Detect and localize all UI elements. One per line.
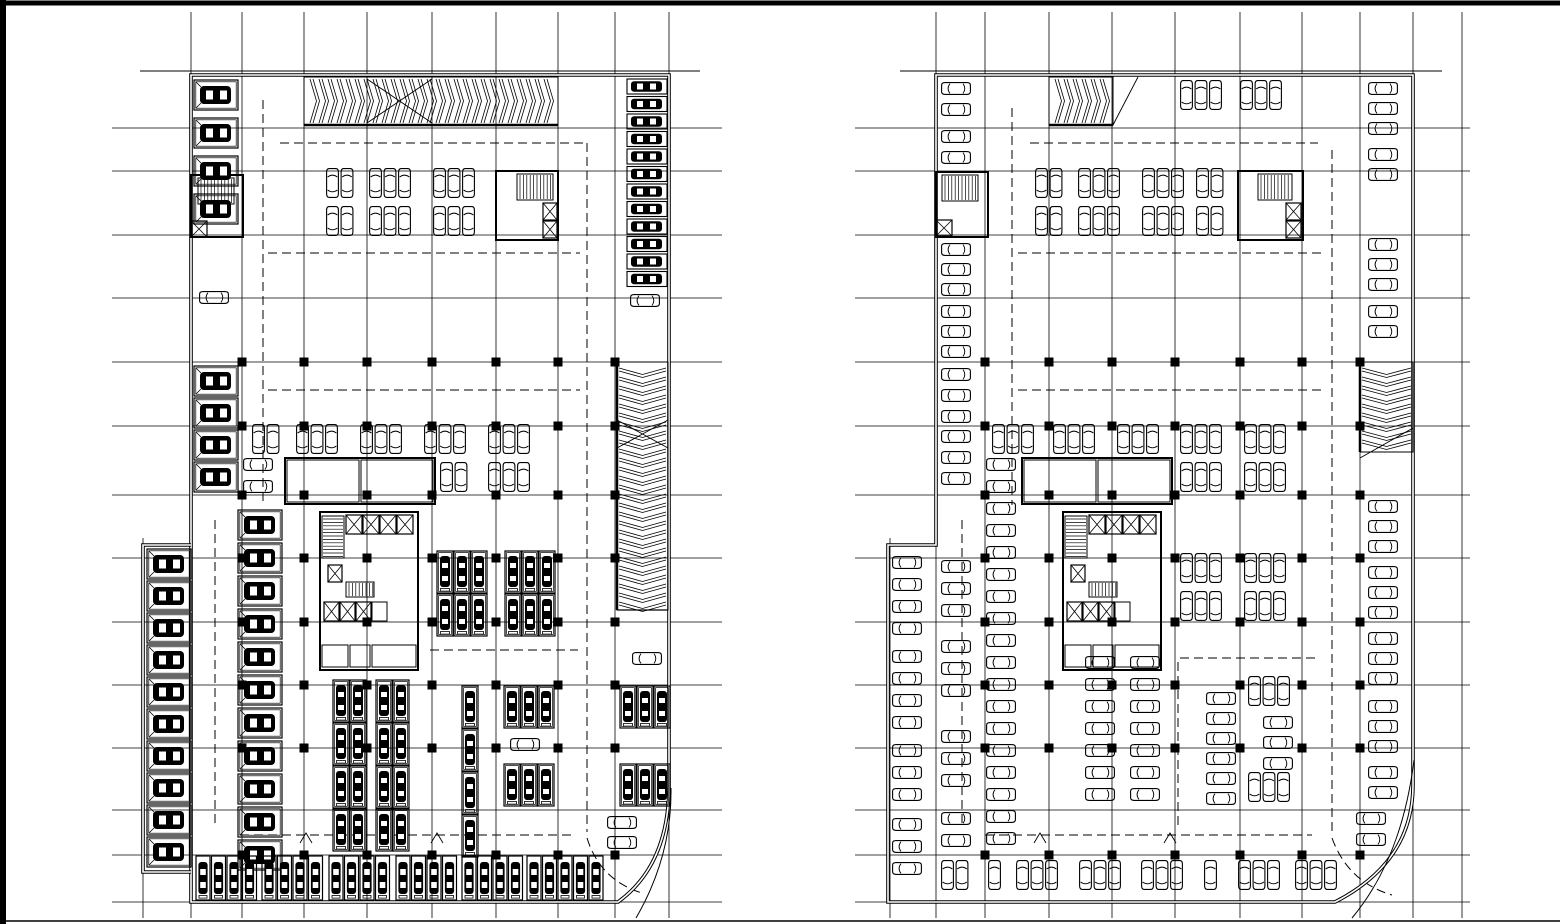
car-windshield: [1275, 469, 1285, 471]
car-windshield: [1375, 84, 1377, 94]
pallet: [458, 632, 467, 635]
car-body: [1245, 463, 1257, 492]
slot: [173, 560, 180, 569]
car-rear-window: [1107, 768, 1109, 778]
stair-icon: [517, 174, 553, 200]
car-rear-window: [371, 190, 381, 192]
car-body: [893, 863, 922, 875]
car-icon: [370, 169, 382, 198]
car-windshield: [899, 558, 901, 568]
pallet: [543, 589, 552, 592]
car-rear-window: [268, 446, 278, 448]
pallet: [561, 896, 569, 899]
car-windshield: [1144, 175, 1154, 177]
car-icon: [1369, 521, 1398, 533]
car-icon: [1369, 587, 1398, 599]
car-windshield: [328, 213, 338, 215]
mech-stall-icon: [329, 856, 343, 900]
slot: [313, 869, 319, 875]
car-body: [1278, 677, 1290, 706]
pallet: [530, 896, 538, 899]
car-icon: [1274, 463, 1286, 492]
car-rear-window: [914, 864, 916, 874]
slot: [338, 821, 344, 826]
car-icon: [1207, 793, 1236, 805]
pallet: [354, 761, 363, 764]
mech-stall-icon: [147, 709, 191, 739]
car-icon: [384, 169, 396, 198]
ramp-chevron: [619, 368, 666, 375]
slot: [159, 816, 166, 825]
car-body: [893, 601, 922, 613]
ramp-chevron: [619, 377, 666, 384]
car-windshield: [948, 153, 950, 163]
car-body: [1249, 773, 1261, 802]
slot: [250, 719, 257, 728]
slot: [173, 656, 180, 665]
car-windshield: [948, 132, 950, 142]
car-rear-window: [1110, 882, 1120, 884]
car-windshield: [1375, 674, 1377, 684]
slot: [459, 606, 465, 611]
mech-car-silhouette: [508, 556, 518, 587]
car-body: [1195, 81, 1207, 110]
car-body: [370, 169, 382, 198]
car-rear-window: [1196, 575, 1206, 577]
pallet: [624, 724, 633, 727]
car-windshield: [400, 213, 410, 215]
column-icon: [492, 422, 501, 431]
car-body: [893, 673, 922, 685]
car-body: [1369, 279, 1398, 291]
parking-row: [505, 551, 555, 593]
slot: [264, 785, 271, 794]
car-rear-window: [1157, 882, 1167, 884]
car-body: [1108, 169, 1120, 198]
car-rear-window: [1119, 446, 1129, 448]
car-rear-window: [1008, 702, 1010, 712]
car-body: [434, 169, 446, 198]
car-rear-window: [1285, 738, 1287, 748]
car-icon: [987, 745, 1016, 757]
car-windshield: [993, 570, 995, 580]
elevator-icon: [397, 515, 413, 534]
car-rear-window: [1182, 613, 1192, 615]
column-icon: [238, 851, 247, 860]
car-windshield: [1137, 790, 1139, 800]
mech-car-silhouette: [379, 771, 389, 802]
car-rear-window: [400, 190, 410, 192]
column-icon: [1108, 851, 1117, 860]
ramp-chevron: [1362, 386, 1411, 393]
pallet: [481, 896, 489, 899]
car-body: [942, 753, 971, 765]
slot: [637, 259, 643, 265]
parking-row: [1143, 169, 1184, 198]
mech-stall-icon: [147, 581, 191, 611]
car-rear-window: [963, 432, 965, 442]
slot: [497, 869, 503, 875]
car-body: [1369, 103, 1398, 115]
car-body: [1086, 789, 1115, 801]
mech-car-silhouette: [280, 862, 289, 894]
car-windshield: [1182, 431, 1192, 433]
car-icon: [1259, 463, 1271, 492]
tick: [149, 828, 154, 833]
pallet: [577, 896, 585, 899]
slot: [264, 719, 271, 728]
car-windshield: [1246, 431, 1256, 433]
car-windshield: [943, 867, 953, 869]
car-icon: [1131, 789, 1160, 801]
pallet: [337, 804, 346, 807]
car-windshield: [1211, 431, 1221, 433]
mech-car-silhouette: [295, 862, 304, 894]
car-rear-window: [629, 838, 631, 848]
car-rear-window: [1211, 613, 1221, 615]
column-icon: [363, 744, 372, 753]
slot: [231, 869, 237, 875]
car-icon: [942, 369, 971, 381]
car-rear-window: [1285, 759, 1287, 769]
car-body: [1357, 813, 1386, 825]
parking-row: [608, 837, 637, 849]
car-rear-window: [1260, 484, 1270, 486]
parking-row: [987, 459, 1016, 845]
parking-row: [370, 207, 411, 236]
car-body: [399, 207, 411, 236]
tick: [149, 583, 154, 588]
parking-row: [1245, 425, 1286, 454]
column-icon: [300, 422, 309, 431]
car-windshield: [1182, 469, 1192, 471]
car-body: [1197, 207, 1209, 236]
car-rear-window: [1228, 794, 1230, 804]
mech-stall-icon: [194, 430, 238, 460]
car-windshield: [1109, 175, 1119, 177]
slot: [173, 624, 180, 633]
car-windshield: [456, 469, 466, 471]
car-rear-window: [328, 190, 338, 192]
column-icon: [554, 681, 563, 690]
car-body: [942, 346, 971, 358]
car-icon: [987, 613, 1016, 625]
mech-stall-icon: [412, 856, 426, 900]
mech-stall-icon: [471, 594, 487, 636]
car-windshield: [1032, 867, 1042, 869]
car-body: [1274, 463, 1286, 492]
ramp-chevron: [517, 79, 524, 123]
stair-frame: [517, 174, 553, 200]
parking-row: [437, 594, 487, 636]
column-icon: [428, 851, 437, 860]
car-icon: [893, 767, 922, 779]
mech-stall-icon: [393, 680, 409, 722]
slot: [250, 686, 257, 695]
parking-row: [505, 594, 555, 636]
car-icon: [987, 789, 1016, 801]
car-rear-window: [1152, 702, 1154, 712]
car-body: [1131, 723, 1160, 735]
column-icon: [492, 744, 501, 753]
parking-row: [1369, 83, 1398, 135]
car-icon: [1007, 425, 1019, 454]
mech-car-silhouette: [631, 169, 662, 180]
car-rear-window: [914, 558, 916, 568]
car-windshield: [948, 370, 950, 380]
car-icon: [942, 663, 971, 675]
slot: [159, 752, 166, 761]
car-icon: [1264, 737, 1293, 749]
mech-car-silhouette: [379, 685, 389, 716]
column-icon: [1171, 681, 1180, 690]
parking-row: [1205, 861, 1217, 890]
car-body: [1245, 425, 1257, 454]
car-rear-window: [1378, 814, 1380, 824]
mech-car-silhouette: [657, 691, 667, 722]
slot: [509, 711, 515, 716]
car-icon: [1245, 592, 1257, 621]
car-icon: [455, 463, 467, 492]
car-body: [1369, 521, 1398, 533]
room: [1115, 602, 1130, 621]
parking-row: [333, 680, 366, 722]
column-icon: [1171, 744, 1180, 753]
parking-row: [1181, 425, 1222, 454]
car-rear-window: [963, 606, 965, 616]
slot: [637, 154, 643, 160]
car-windshield: [948, 584, 950, 594]
car-windshield: [1119, 431, 1129, 433]
slot: [173, 848, 180, 857]
car-windshield: [993, 724, 995, 734]
car-icon: [1147, 425, 1159, 454]
parking-row: [942, 861, 968, 890]
car-windshield: [464, 175, 474, 177]
car-rear-window: [1256, 102, 1266, 104]
car-windshield: [385, 175, 395, 177]
slot: [355, 791, 361, 796]
slot: [398, 821, 404, 826]
parking-row: [437, 551, 487, 593]
car-windshield: [899, 696, 901, 706]
slot: [650, 101, 656, 107]
car-rear-window: [652, 296, 654, 306]
car-rear-window: [963, 474, 965, 484]
column-icon: [1356, 358, 1365, 367]
car-windshield: [1137, 680, 1139, 690]
car-icon: [1207, 753, 1236, 765]
tick: [240, 830, 245, 835]
pallet: [658, 802, 667, 805]
car-windshield: [206, 293, 208, 303]
slot: [562, 869, 568, 875]
column-icon: [1356, 681, 1365, 690]
car-windshield: [993, 526, 995, 536]
column-icon: [1236, 422, 1245, 431]
car-windshield: [899, 842, 901, 852]
car-body: [1080, 861, 1092, 890]
car-rear-window: [1390, 104, 1392, 114]
pallet: [509, 632, 518, 635]
car-rear-window: [963, 642, 965, 652]
column-icon: [492, 851, 501, 860]
car-body: [942, 104, 971, 116]
mech-stall-icon: [627, 149, 667, 164]
plan-left: [112, 12, 722, 918]
slot: [264, 587, 271, 596]
ramp-chevron: [619, 485, 666, 492]
car-windshield: [1055, 431, 1065, 433]
tick: [240, 545, 245, 550]
slot: [159, 656, 166, 665]
car-icon: [311, 425, 323, 454]
mech-stall-icon: [521, 764, 537, 806]
parking-row: [1249, 677, 1290, 706]
slot: [466, 869, 472, 875]
mech-stall-icon: [333, 766, 349, 808]
car-body: [942, 605, 971, 617]
column-icon: [1236, 744, 1245, 753]
car-body: [987, 635, 1016, 647]
car-body: [1181, 425, 1193, 454]
mech-car-silhouette: [631, 116, 662, 127]
slot: [264, 521, 271, 530]
slot: [642, 711, 648, 716]
parking-row: [462, 815, 478, 857]
car-rear-window: [1152, 746, 1154, 756]
car-body: [987, 767, 1016, 779]
slot: [459, 619, 465, 624]
parking-row: [1181, 463, 1222, 492]
car-windshield: [1375, 722, 1377, 732]
ramp-chevron: [544, 79, 551, 123]
mech-car-silhouette: [264, 862, 273, 894]
car-body: [1207, 693, 1236, 705]
mech-car-silhouette: [508, 599, 518, 630]
tick: [149, 764, 154, 769]
column-icon: [611, 422, 620, 431]
car-body: [1369, 149, 1398, 161]
parking-row: [200, 292, 229, 304]
column-icon: [611, 491, 620, 500]
car-body: [1207, 713, 1236, 725]
car-body: [1211, 169, 1223, 198]
car-icon: [1369, 701, 1398, 713]
column-icon: [1108, 744, 1117, 753]
car-body: [1181, 592, 1193, 621]
elevator-icon: [328, 565, 342, 582]
slot: [526, 698, 532, 703]
car-icon: [1210, 463, 1222, 492]
column-icon: [1298, 358, 1307, 367]
car-icon: [1245, 463, 1257, 492]
ramp-chevron: [346, 79, 353, 123]
car-windshield: [948, 453, 950, 463]
car-body: [463, 207, 475, 236]
slot: [282, 882, 288, 888]
parking-row: [1369, 767, 1398, 799]
car-rear-window: [963, 347, 965, 357]
slot: [593, 882, 599, 888]
car-rear-window: [1326, 882, 1336, 884]
room: [287, 460, 359, 502]
slot: [476, 606, 482, 611]
parking-row: [942, 83, 971, 116]
column-icon: [300, 618, 309, 627]
slot: [349, 869, 355, 875]
car-rear-window: [1080, 190, 1090, 192]
car-icon: [244, 459, 273, 471]
stair-icon: [1258, 174, 1292, 200]
car-icon: [893, 601, 922, 613]
car-rear-window: [963, 285, 965, 295]
mech-stall-icon: [509, 856, 523, 900]
slot: [159, 592, 166, 601]
slot: [578, 882, 584, 888]
car-rear-window: [1390, 654, 1392, 664]
car-icon: [1181, 81, 1193, 110]
car-windshield: [1279, 779, 1289, 781]
pallet: [465, 896, 473, 899]
parking-row: [376, 766, 409, 808]
slot: [510, 606, 516, 611]
car-icon: [1171, 861, 1183, 890]
car-body: [1086, 767, 1115, 779]
car-rear-window: [1196, 446, 1206, 448]
car-rear-window: [1246, 484, 1256, 486]
parking-row: [196, 856, 257, 900]
pallet: [508, 802, 517, 805]
car-windshield: [1196, 469, 1206, 471]
car-rear-window: [914, 652, 916, 662]
car-body: [1263, 677, 1275, 706]
car-body: [1245, 592, 1257, 621]
car-icon: [1369, 149, 1398, 161]
stair-icon: [322, 516, 344, 558]
car-rear-window: [1094, 190, 1104, 192]
structural-grid: [855, 12, 1470, 918]
car-icon: [1369, 123, 1398, 135]
car-rear-window: [1182, 484, 1192, 486]
car-windshield: [1213, 774, 1215, 784]
car-windshield: [899, 864, 901, 874]
ramp-chevron: [445, 79, 452, 123]
car-icon: [341, 169, 353, 198]
column-icon: [1108, 618, 1117, 627]
mech-car-silhouette: [631, 239, 662, 250]
car-icon: [1369, 103, 1398, 115]
car-icon: [893, 673, 922, 685]
parking-row: [1143, 207, 1184, 236]
tick: [196, 120, 201, 125]
column-icon: [1298, 744, 1307, 753]
car-body: [1157, 169, 1169, 198]
car-body: [987, 503, 1016, 515]
column-icon: [1171, 422, 1180, 431]
car-rear-window: [1196, 102, 1206, 104]
car-body: [1108, 207, 1120, 236]
car-rear-window: [1081, 882, 1091, 884]
stair-frame: [346, 582, 374, 597]
car-rear-window: [490, 446, 500, 448]
column-icon: [554, 422, 563, 431]
car-rear-window: [1275, 575, 1285, 577]
slot: [543, 711, 549, 716]
slot: [650, 224, 656, 230]
car-icon: [1108, 169, 1120, 198]
car-body: [942, 431, 971, 443]
